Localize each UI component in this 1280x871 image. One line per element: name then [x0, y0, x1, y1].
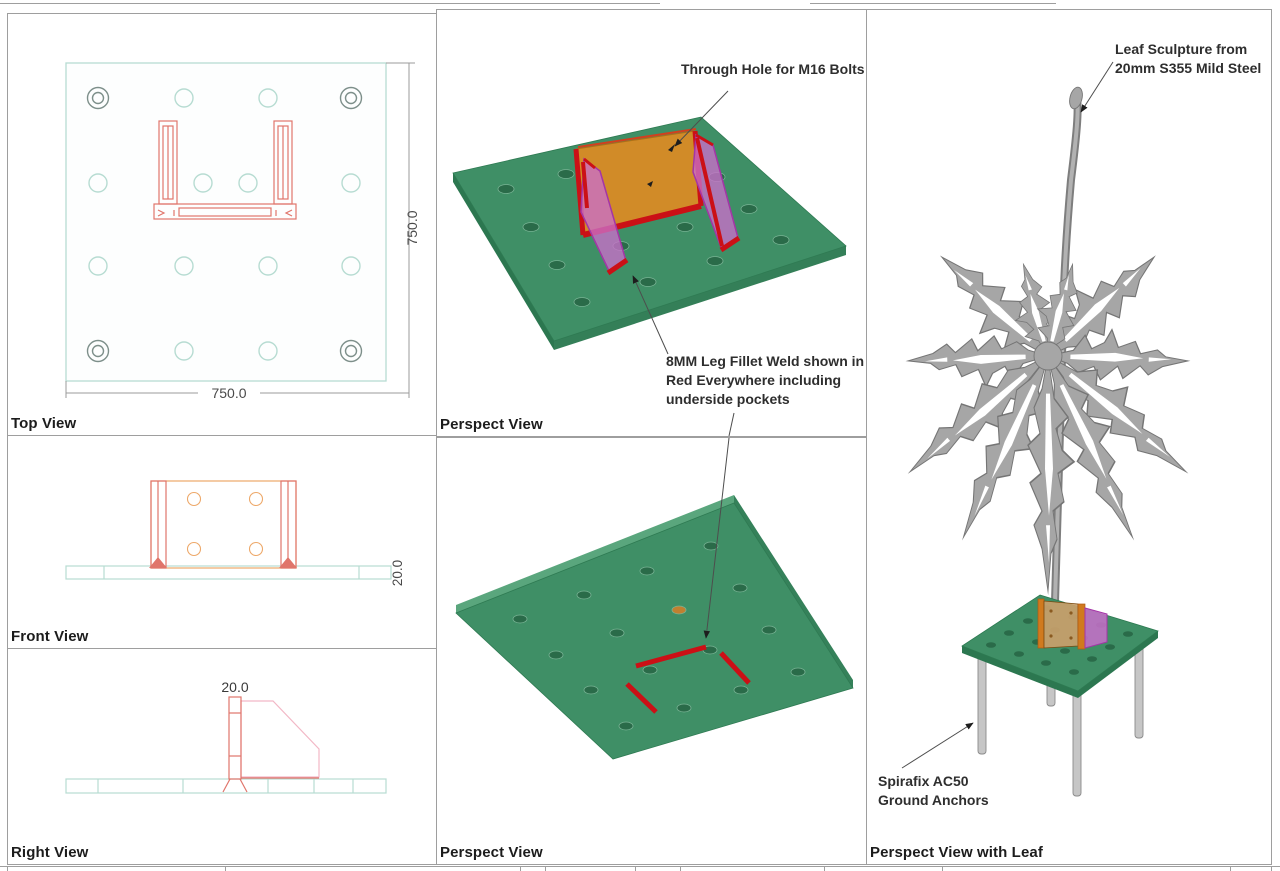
titleblock-divider [545, 867, 546, 871]
right-view-drawing: 20.0 [8, 649, 436, 864]
bracket-front-outline [149, 481, 297, 568]
panel-persp-leaf: Leaf Sculpture from 20mm S355 Mild Steel… [866, 9, 1272, 865]
titleblock-divider [1271, 867, 1272, 871]
bracket-3d-small [1038, 599, 1107, 649]
persp-bottom-label: Perspect View [440, 844, 543, 861]
weld-note: 8MM Leg Fillet Weld shown in Red Everywh… [666, 352, 864, 409]
panel-persp-weld-bottom: Perspect View [436, 437, 867, 865]
top-view-drawing: 750.0 750.0 [8, 14, 436, 435]
panel-top-view: 750.0 750.0 Top View [7, 13, 437, 436]
titleblock-divider [824, 867, 825, 871]
dim-height-text: 750.0 [404, 210, 420, 245]
titleblock-divider [1230, 867, 1231, 871]
base-plate-outline [66, 63, 386, 381]
panel-front-view: 20.0 Front View [7, 435, 437, 649]
cad-drawing-sheet: { "sheet": { "top_view": { "label": "Top… [0, 0, 1280, 870]
titleblock-row-cutoff [0, 866, 1280, 871]
titleblock-divider [520, 867, 521, 871]
persp-leaf-label: Perspect View with Leaf [870, 844, 1043, 861]
persp-top-label: Perspect View [440, 416, 543, 433]
persp-bottom-render [437, 438, 866, 864]
top-view-label: Top View [11, 415, 76, 432]
anchor-note: Spirafix AC50 Ground Anchors [878, 772, 989, 810]
titleblock-divider [7, 867, 8, 871]
leaf-sculpture [897, 235, 1204, 591]
dim-thickness-text: 20.0 [221, 679, 248, 695]
front-view-label: Front View [11, 628, 88, 645]
upright-plate-edge [223, 697, 319, 792]
titleblock-divider [635, 867, 636, 871]
persp-leaf-render [867, 10, 1271, 864]
front-view-drawing: 20.0 [8, 436, 436, 648]
sheet-top-line-right [810, 3, 1056, 4]
dim-thickness-text: 20.0 [390, 560, 405, 586]
titleblock-divider [225, 867, 226, 871]
titleblock-divider [680, 867, 681, 871]
right-view-label: Right View [11, 844, 88, 861]
panel-right-view: 20.0 Right View [7, 648, 437, 865]
sheet-top-line-left [0, 3, 660, 4]
titleblock-divider [942, 867, 943, 871]
panel-persp-weld-top: Through Hole for M16 Bolts 8MM Leg Fille… [436, 9, 867, 437]
gusset-side-outline [241, 701, 319, 777]
dim-width-text: 750.0 [211, 385, 246, 401]
leaf-note: Leaf Sculpture from 20mm S355 Mild Steel [1115, 40, 1261, 78]
hole-note: Through Hole for M16 Bolts [681, 60, 865, 79]
base-plate-underside [456, 495, 853, 759]
